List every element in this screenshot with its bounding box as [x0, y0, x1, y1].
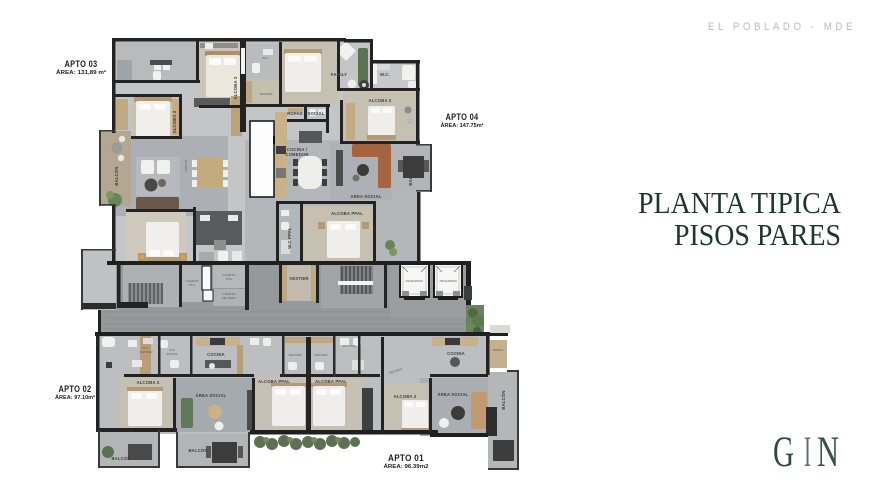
svg-text:ALCOBA PPAL: ALCOBA PPAL [315, 379, 347, 384]
svg-text:ROPAS: ROPAS [287, 111, 303, 116]
svg-text:APTO 03: APTO 03 [184, 159, 188, 172]
svg-text:BALCÓN: BALCÓN [111, 456, 130, 461]
svg-text:I: I [804, 429, 811, 476]
svg-text:VESTIER: VESTIER [314, 353, 328, 357]
svg-text:PISOS PARES: PISOS PARES [674, 217, 841, 252]
svg-text:W.C: W.C [262, 56, 269, 60]
svg-text:APTO 03: APTO 03 [65, 59, 98, 70]
svg-text:COCINA: COCINA [447, 351, 465, 356]
svg-text:COCINA: COCINA [207, 352, 225, 357]
svg-text:ÁREA SOCIAL: ÁREA SOCIAL [196, 393, 227, 398]
svg-text:ALCOBA 2: ALCOBA 2 [369, 98, 392, 103]
svg-text:ALCOBA 2: ALCOBA 2 [137, 380, 160, 385]
svg-text:VESTIER: VESTIER [259, 92, 273, 96]
svg-text:ÁREA: 147.75m²: ÁREA: 147.75m² [441, 122, 484, 129]
svg-text:BALCÓN: BALCÓN [408, 166, 413, 185]
svg-text:VESTIER: VESTIER [139, 350, 153, 354]
svg-text:COMEDOR: COMEDOR [285, 152, 308, 157]
svg-text:W.C PPAL: W.C PPAL [343, 344, 358, 348]
svg-text:ÚTIL: ÚTIL [189, 283, 196, 287]
svg-text:VESTIER: VESTIER [288, 353, 302, 357]
svg-text:VESTIER: VESTIER [289, 276, 308, 281]
svg-text:BALCÓN: BALCÓN [114, 166, 119, 185]
svg-text:ALCOBA 2: ALCOBA 2 [172, 110, 177, 133]
svg-text:W.C PPAL: W.C PPAL [287, 227, 292, 249]
svg-text:ALCOBA 3: ALCOBA 3 [233, 76, 238, 99]
svg-text:ÁREA: 131,89 m²: ÁREA: 131,89 m² [56, 69, 106, 76]
svg-text:APTO 02: APTO 02 [59, 384, 92, 395]
svg-text:N: N [817, 429, 839, 476]
svg-text:W.C.: W.C. [380, 72, 390, 77]
svg-text:PLANTA TIPICA: PLANTA TIPICA [638, 185, 842, 220]
svg-text:BALCÓN: BALCÓN [188, 448, 207, 453]
svg-text:AREA SOCIAL: AREA SOCIAL [351, 194, 382, 199]
svg-text:ÁREA SOCIAL: ÁREA SOCIAL [438, 392, 469, 397]
svg-text:ÁREA: 96.39m2: ÁREA: 96.39m2 [384, 463, 429, 470]
svg-text:EL POBLADO - MDE: EL POBLADO - MDE [708, 21, 856, 33]
svg-text:ALCOBA PPAL: ALCOBA PPAL [258, 379, 290, 384]
svg-text:SOCIAL: SOCIAL [307, 111, 324, 116]
svg-text:ÁREA: 97.10m²: ÁREA: 97.10m² [55, 394, 95, 401]
svg-text:ALCOBA PPAL: ALCOBA PPAL [331, 211, 363, 216]
svg-text:ASCENSOR: ASCENSOR [405, 279, 423, 283]
svg-text:FAMILY: FAMILY [331, 72, 347, 77]
svg-text:APTO 01: APTO 01 [388, 453, 424, 464]
svg-text:ALCOBA 2: ALCOBA 2 [394, 394, 417, 399]
svg-text:APTO 04: APTO 04 [446, 112, 479, 123]
svg-text:DE ASEO: DE ASEO [222, 296, 236, 300]
svg-text:ÚTIL: ÚTIL [226, 277, 233, 281]
svg-text:ROPAS: ROPAS [493, 348, 504, 352]
svg-text:SOCIAL: SOCIAL [166, 352, 178, 356]
svg-text:G: G [773, 429, 794, 476]
svg-text:ASCENSOR: ASCENSOR [439, 279, 457, 283]
svg-text:BALCÓN: BALCÓN [501, 390, 506, 409]
